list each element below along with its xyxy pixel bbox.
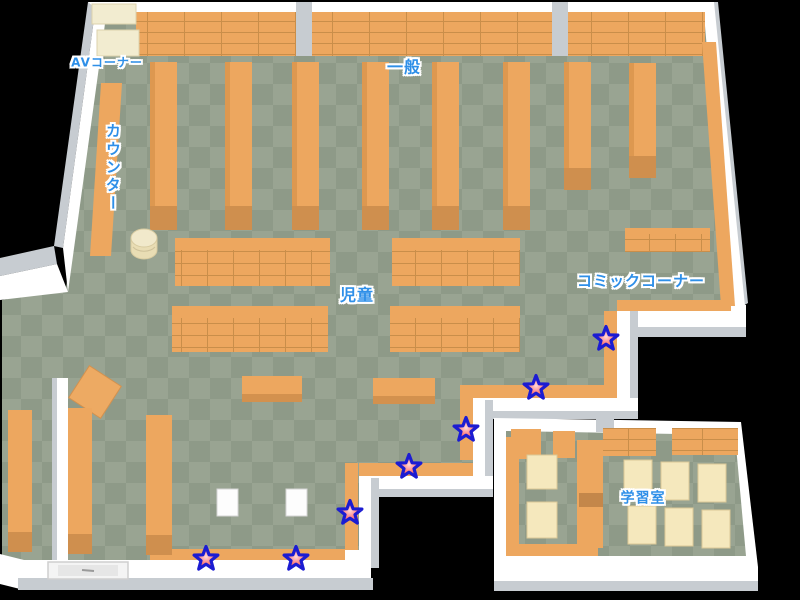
av-counter: [97, 30, 139, 56]
pillar: [286, 489, 307, 516]
low-table: [373, 378, 435, 404]
wall: [473, 411, 638, 419]
comic-corner-shelf: [625, 228, 710, 252]
library-floor-map: AVコーナーカウンター一般児童コミックコーナー学習室: [0, 0, 800, 600]
bookshelf: [503, 62, 530, 230]
wall: [371, 478, 379, 568]
entrance-door[interactable]: [48, 562, 128, 579]
pillar: [217, 489, 238, 516]
study-desk: [624, 460, 652, 498]
wall: [359, 476, 493, 489]
bookshelf: [150, 549, 345, 560]
bookshelf: [146, 415, 172, 555]
bookshelf-grid: [136, 12, 705, 56]
wall: [473, 398, 638, 411]
bookshelf: [292, 62, 319, 230]
bookshelf: [672, 428, 738, 455]
bookshelf: [8, 410, 32, 552]
bookshelf: [392, 238, 520, 286]
bookshelf: [629, 63, 656, 178]
floor-map-svg: [0, 0, 800, 600]
bookshelf: [553, 431, 575, 458]
bookshelf: [172, 306, 328, 352]
bookshelf: [617, 300, 731, 311]
study-desk: [665, 508, 693, 546]
bookshelf: [506, 544, 598, 556]
bookshelf: [432, 62, 459, 230]
bookshelf: [604, 311, 617, 392]
bookshelf: [68, 408, 92, 554]
bookshelf: [564, 62, 591, 190]
wall: [88, 2, 712, 12]
partition-wall: [52, 378, 57, 560]
study-desk: [527, 502, 557, 538]
bookshelf: [362, 62, 389, 230]
study-desk: [702, 510, 730, 548]
wall: [473, 398, 485, 484]
wall: [485, 400, 493, 484]
bookshelf: [175, 238, 330, 286]
wall: [494, 581, 758, 591]
bookshelf: [225, 62, 252, 230]
divider-shelf: [577, 440, 603, 548]
study-desk: [628, 506, 656, 544]
bookshelf: [150, 62, 177, 230]
bookshelf: [390, 306, 520, 352]
wall-post: [296, 2, 312, 56]
study-desk: [698, 464, 726, 502]
wall: [359, 489, 493, 497]
bookshelf: [603, 428, 656, 456]
round-rack: [131, 229, 157, 259]
study-desk: [661, 462, 689, 500]
av-counter: [92, 4, 136, 24]
study-room: [494, 418, 758, 591]
low-table: [242, 376, 302, 402]
partition-wall: [57, 378, 68, 560]
study-desk: [527, 455, 557, 489]
wall: [18, 578, 373, 590]
wall-post: [552, 2, 568, 56]
